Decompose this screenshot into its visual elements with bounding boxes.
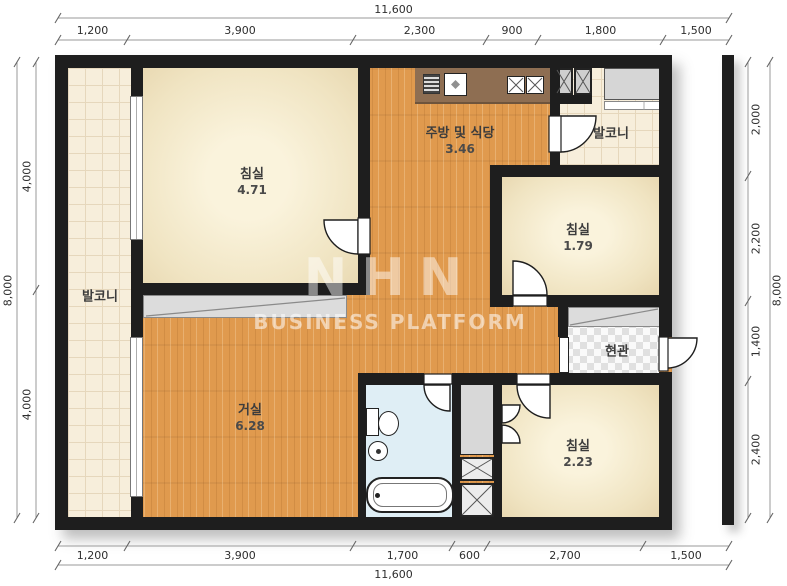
- dim-right-segment: 1,400: [750, 312, 763, 372]
- dim-top-segment: 2,300: [353, 24, 486, 37]
- room-label-bedroom-mid-right: 침실 1.79: [563, 219, 593, 253]
- dim-top-segment: 900: [486, 24, 538, 37]
- wall: [358, 373, 424, 385]
- wall: [550, 68, 560, 116]
- kitchen-sink-icon: [444, 73, 467, 96]
- dim-bottom-segment: 1,200: [58, 549, 127, 562]
- wall: [452, 373, 517, 385]
- entrance-shoe-closet: [568, 307, 660, 327]
- wall: [494, 373, 502, 517]
- sink-tap-icon: [376, 449, 381, 454]
- floorplan-canvas: 11,600 1,200 3,900 2,300 900 1,800 1,500…: [0, 0, 787, 586]
- toilet-bowl-icon: [378, 411, 399, 436]
- dim-right-segment: 2,000: [750, 90, 763, 150]
- window: [130, 337, 143, 497]
- dim-top-segment: 1,200: [58, 24, 127, 37]
- dim-bottom-segment: 600: [452, 549, 487, 562]
- wall: [490, 295, 513, 307]
- dim-bottom-total: 11,600: [58, 568, 729, 581]
- entrance-threshold: [559, 337, 569, 373]
- dim-top-segment: 1,500: [663, 24, 729, 37]
- room-label-entrance: 현관: [605, 341, 629, 360]
- dim-left-total: 8,000: [2, 261, 15, 321]
- dim-bottom-segment: 1,700: [353, 549, 452, 562]
- room-label-balcony-left: 발코니: [82, 286, 118, 305]
- wall: [358, 68, 370, 218]
- dim-right-segment: 2,400: [750, 420, 763, 480]
- utility-duct: [460, 383, 494, 455]
- wall: [490, 165, 502, 307]
- dim-top-segment: 1,800: [538, 24, 663, 37]
- room-label-balcony-top-right: 발코니: [593, 123, 629, 142]
- room-label-bedroom-bottom-right: 침실 2.23: [563, 435, 593, 469]
- dim-left-segment: 4,000: [21, 375, 34, 435]
- dim-right-total: 8,000: [771, 261, 784, 321]
- stove-burner-icon: [526, 76, 544, 94]
- dim-left-segment: 4,000: [21, 147, 34, 207]
- wall: [490, 165, 672, 177]
- dim-top-total: 11,600: [58, 3, 729, 16]
- dim-right-segment: 2,200: [750, 209, 763, 269]
- dim-top-segment: 3,900: [127, 24, 353, 37]
- wall-outer-top: [55, 55, 672, 68]
- wall: [131, 283, 370, 295]
- wall-corridor: [722, 55, 734, 525]
- window: [130, 96, 143, 240]
- room-label-kitchen-dining: 주방 및 식당 3.46: [426, 122, 495, 156]
- bathtub-inner: [373, 483, 447, 507]
- room-label-bedroom-top-left: 침실 4.71: [237, 163, 267, 197]
- wall: [547, 295, 672, 307]
- washer-icon: [604, 68, 661, 100]
- dim-bottom-segment: 1,500: [643, 549, 729, 562]
- washer-tray: [604, 101, 661, 110]
- wall: [558, 307, 568, 337]
- dim-bottom-segment: 2,700: [487, 549, 643, 562]
- stove-burner-icon: [507, 76, 525, 94]
- duct-shaft: [574, 68, 592, 95]
- kitchen-vent-icon: [423, 74, 440, 94]
- wall: [358, 373, 366, 517]
- wall-outer-left: [55, 55, 68, 530]
- shaft-small: [460, 457, 494, 481]
- wall-outer-bottom: [55, 517, 672, 530]
- shaft-large: [460, 483, 494, 517]
- dim-bottom-segment: 3,900: [127, 549, 353, 562]
- room-label-living-room: 거실 6.28: [235, 399, 265, 433]
- living-room-closet: [143, 295, 347, 318]
- wall: [550, 373, 672, 385]
- bathtub-faucet-icon: [375, 493, 380, 498]
- wall: [555, 95, 592, 104]
- wall-outer-right: [659, 372, 672, 530]
